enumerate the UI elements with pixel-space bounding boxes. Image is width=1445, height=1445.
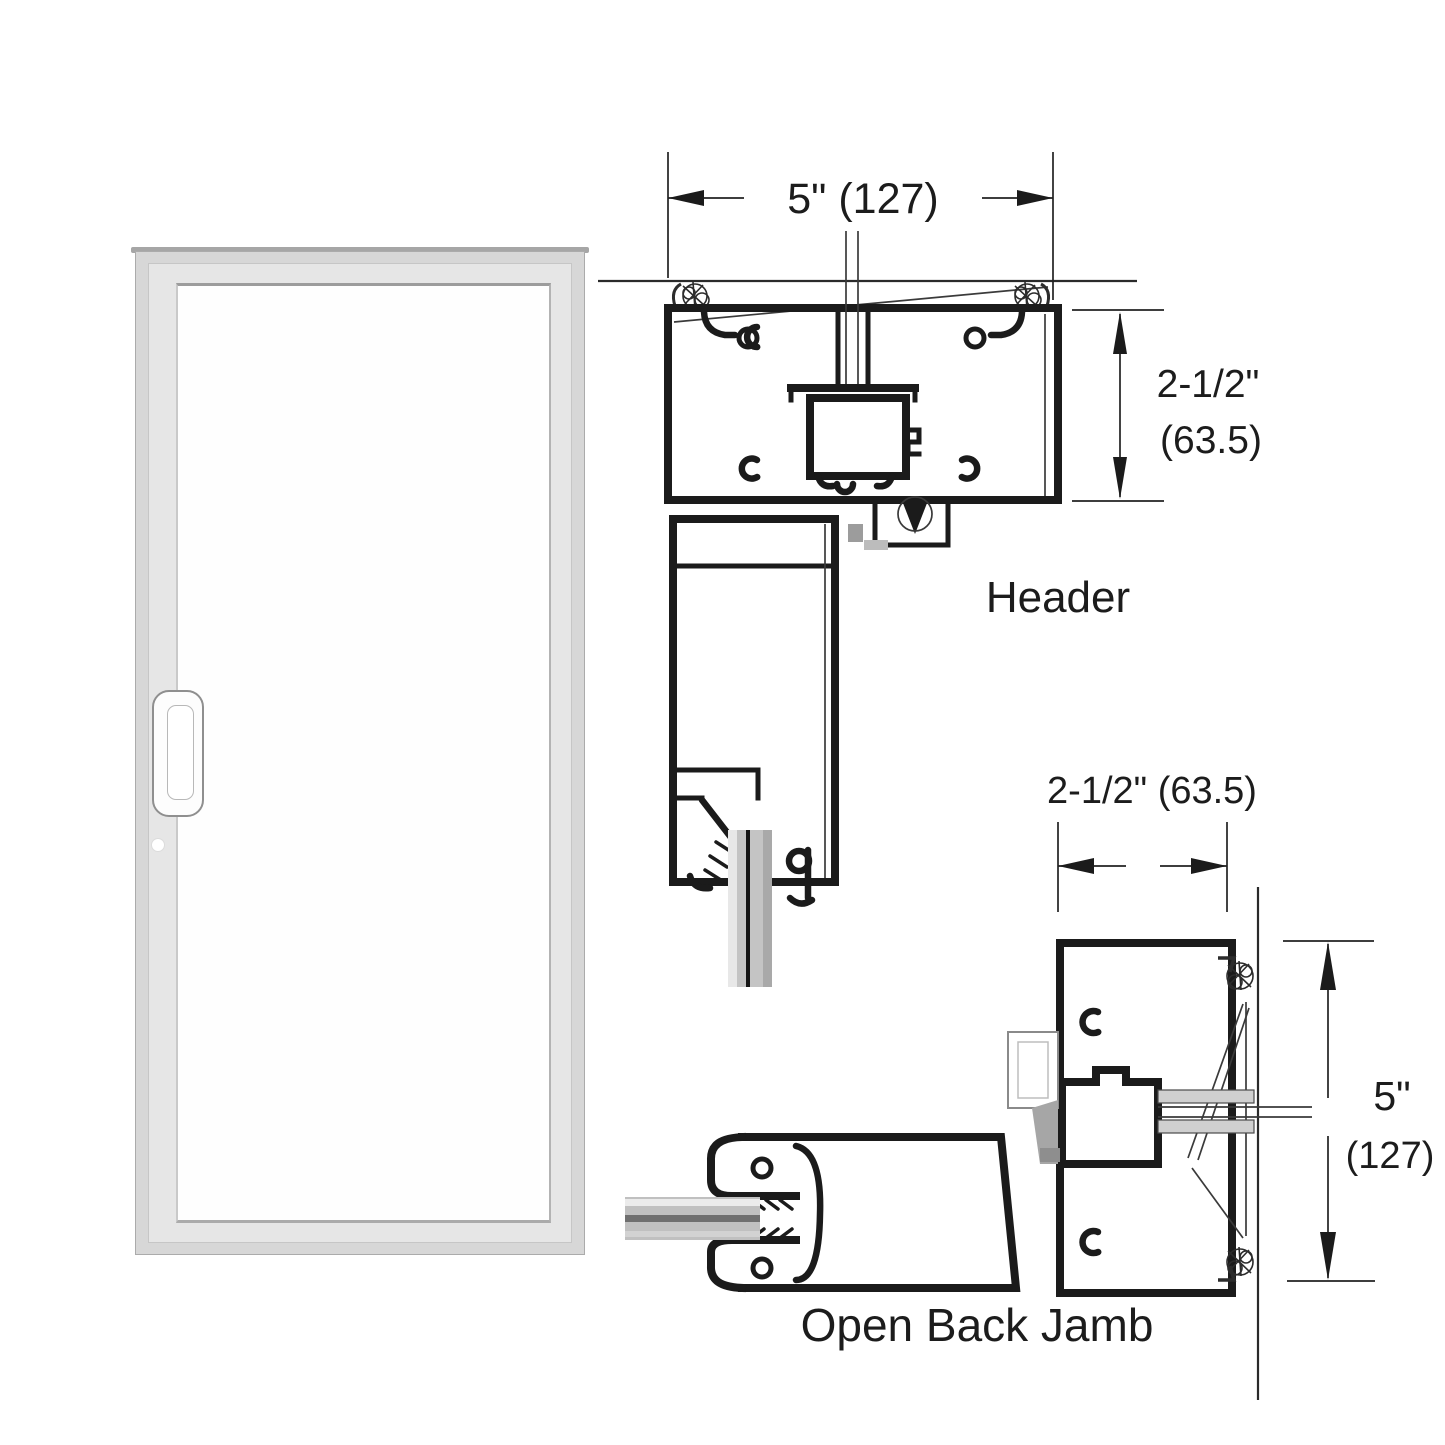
header-width-dimension: 5" (127) (668, 152, 1053, 300)
jamb-filler (1008, 1032, 1058, 1108)
header-section-drawing: 5" (127) 2-1/2" (63.5) Header (598, 152, 1262, 987)
jamb-width-dim-text: 2-1/2" (63.5) (1047, 770, 1257, 812)
screw-boss (742, 459, 757, 479)
header-depth-dimension: 2-1/2" (63.5) (1072, 310, 1262, 501)
jamb-width-dimension: 2-1/2" (63.5) (1047, 770, 1257, 912)
glass-section-horizontal (625, 1197, 760, 1240)
header-depth-dim-text-2: (63.5) (1160, 419, 1262, 462)
jamb-glazing-pocket (1062, 1070, 1158, 1164)
storefront-door-spec-diagram: 5" (127) 2-1/2" (63.5) Header (0, 0, 1445, 1445)
jamb-depth-dim-text-1: 5" (1373, 1073, 1410, 1119)
screw-boss (1083, 1011, 1099, 1033)
door-top-rail-profile (673, 519, 835, 882)
header-label: Header (986, 573, 1130, 622)
glass-section-vertical (728, 830, 772, 987)
jamb-depth-dimension: 5" (127) (1283, 941, 1434, 1281)
header-width-dim-text: 5" (127) (787, 175, 939, 223)
section-drawings: 5" (127) 2-1/2" (63.5) Header (0, 0, 1445, 1445)
header-depth-dim-text-1: 2-1/2" (1157, 363, 1260, 406)
jamb-depth-dim-text-2: (127) (1346, 1135, 1435, 1177)
open-back-jamb-label: Open Back Jamb (801, 1299, 1154, 1351)
